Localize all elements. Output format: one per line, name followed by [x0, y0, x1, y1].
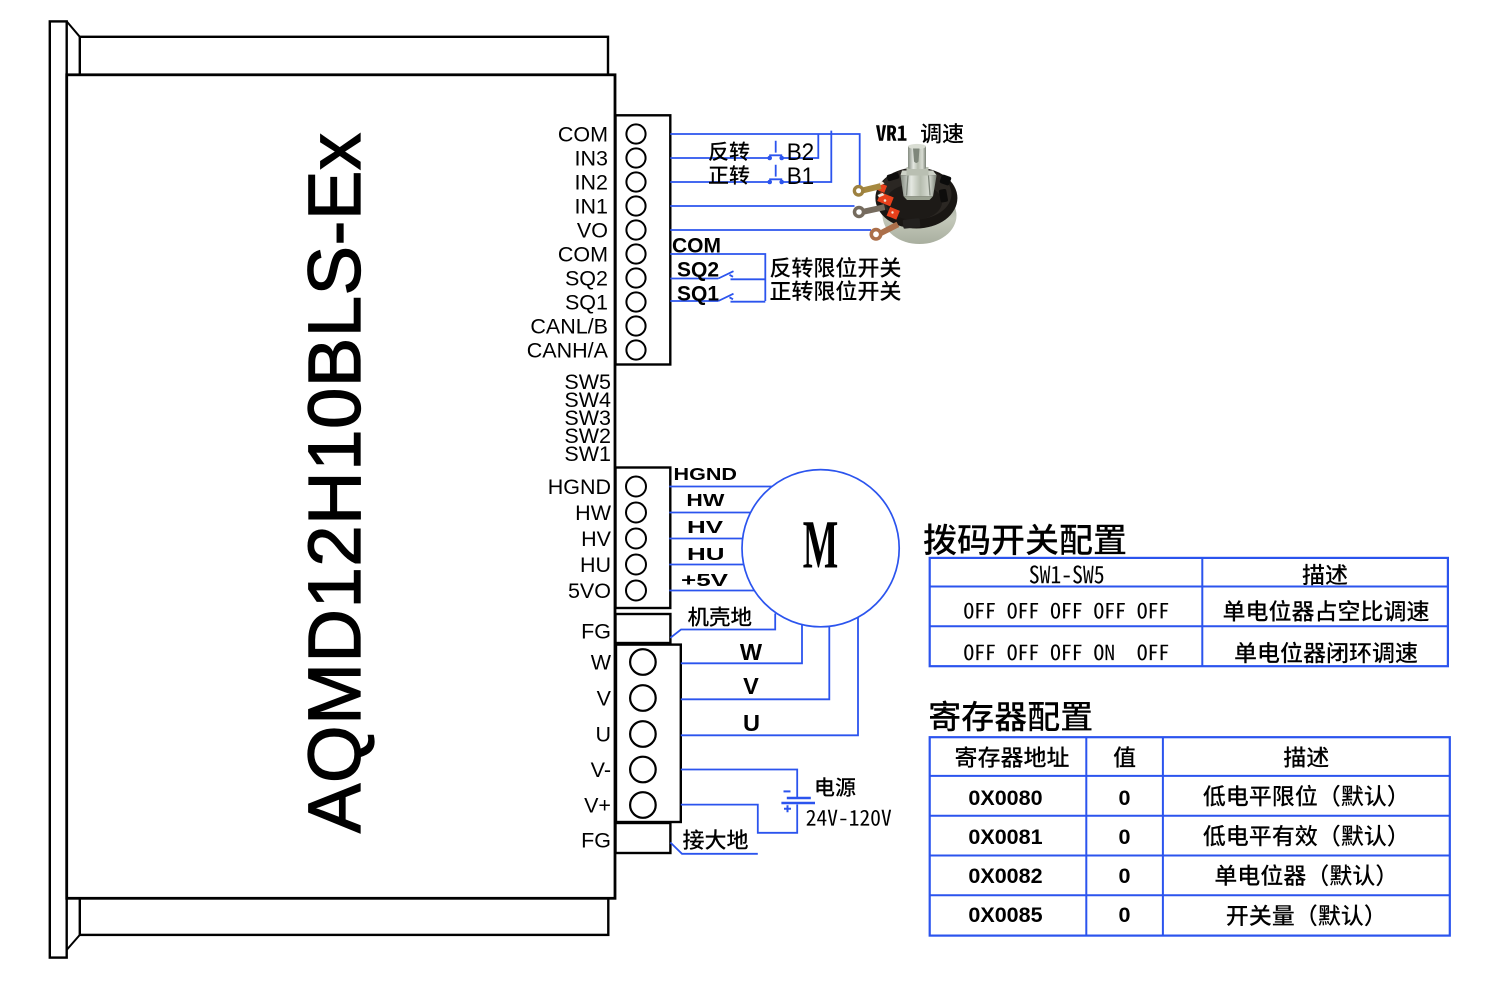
svg-text:HGND: HGND: [548, 475, 611, 499]
svg-text:0: 0: [1119, 786, 1131, 810]
svg-text:SQ1: SQ1: [565, 291, 608, 315]
svg-text:0X0081: 0X0081: [968, 825, 1042, 849]
svg-text:CANL/B: CANL/B: [530, 315, 608, 339]
svg-text:M: M: [803, 507, 839, 583]
svg-text:CANH/A: CANH/A: [527, 339, 609, 363]
svg-text:5VO: 5VO: [568, 579, 611, 603]
svg-text:V-: V-: [591, 758, 611, 782]
svg-text:IN3: IN3: [575, 147, 609, 171]
svg-text:HW: HW: [686, 490, 725, 510]
svg-text:0: 0: [1119, 825, 1131, 849]
svg-text:0X0080: 0X0080: [968, 786, 1042, 810]
svg-text:FG: FG: [581, 620, 611, 644]
svg-text:0X0082: 0X0082: [968, 864, 1042, 888]
svg-text:HGND: HGND: [674, 464, 738, 484]
svg-text:HU: HU: [580, 553, 611, 577]
svg-text:HV: HV: [581, 527, 612, 551]
svg-text:U: U: [743, 710, 760, 736]
svg-text:SW1: SW1: [564, 442, 611, 466]
svg-text:COM: COM: [672, 235, 721, 258]
svg-text:HW: HW: [575, 501, 612, 525]
svg-text:COM: COM: [558, 123, 608, 147]
svg-text:VO: VO: [577, 219, 608, 243]
svg-text:0: 0: [1119, 903, 1131, 927]
svg-text:V+: V+: [584, 794, 611, 818]
svg-text:0: 0: [1119, 864, 1131, 888]
svg-text:V: V: [597, 687, 612, 711]
svg-text:+5V: +5V: [681, 570, 728, 590]
svg-text:COM: COM: [558, 243, 608, 267]
svg-text:SQ1: SQ1: [677, 283, 719, 306]
svg-text:AQMD12H10BLS-Ex: AQMD12H10BLS-Ex: [293, 133, 376, 833]
svg-text:B1: B1: [787, 163, 815, 190]
svg-text:SQ2: SQ2: [677, 259, 719, 282]
svg-text:HU: HU: [687, 544, 725, 564]
svg-text:0X0085: 0X0085: [968, 903, 1042, 927]
svg-text:W: W: [740, 639, 763, 665]
svg-text:FG: FG: [581, 829, 611, 853]
svg-text:SQ2: SQ2: [565, 267, 608, 291]
svg-text:B2: B2: [787, 139, 815, 166]
svg-text:IN1: IN1: [575, 195, 608, 219]
svg-text:V: V: [743, 673, 759, 699]
svg-text:U: U: [595, 723, 611, 747]
svg-text:HV: HV: [687, 517, 723, 537]
svg-text:W: W: [591, 651, 612, 675]
svg-text:IN2: IN2: [575, 171, 608, 195]
